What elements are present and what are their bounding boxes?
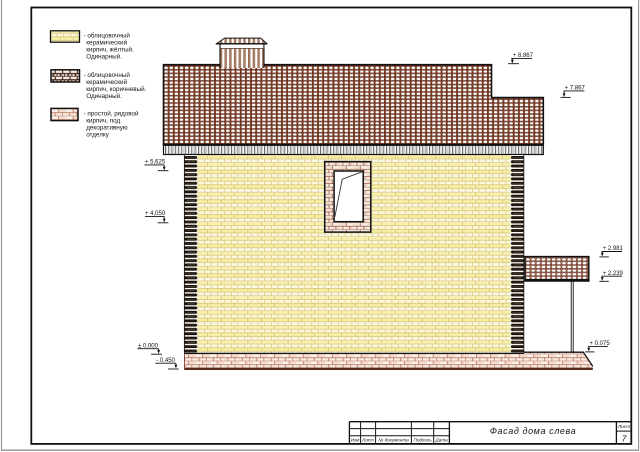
svg-text:керамический: керамический [86, 39, 127, 47]
svg-text:кирпич, коричневый.: кирпич, коричневый. [86, 85, 146, 93]
svg-text:- облицовочный: - облицовочный [84, 32, 131, 40]
svg-text:декоративную: декоративную [86, 125, 128, 132]
svg-text:+ 8.867: + 8.867 [513, 53, 534, 59]
svg-text:керамический: керамический [86, 78, 127, 86]
svg-text:+ 0.075: + 0.075 [590, 341, 611, 347]
svg-text:Одинарный.: Одинарный. [86, 53, 122, 61]
svg-text:Фасад дома слева: Фасад дома слева [490, 426, 576, 436]
svg-text:+ 2.981: + 2.981 [603, 246, 624, 252]
svg-text:+ 4,050: + 4,050 [145, 211, 166, 217]
svg-text:кирпич, жёлтый.: кирпич, жёлтый. [86, 46, 134, 54]
svg-text:№ документа: № документа [378, 438, 409, 443]
svg-text:Одинарный.: Одинарный. [86, 92, 122, 100]
svg-text:Лист: Лист [361, 438, 374, 443]
svg-text:± 0.000: ± 0.000 [138, 343, 159, 349]
svg-text:Дата: Дата [435, 438, 449, 443]
svg-text:Лист: Лист [617, 424, 630, 430]
svg-text:+ 7.867: + 7.867 [565, 85, 586, 91]
svg-text:- 0.450: - 0.450 [156, 358, 175, 364]
svg-text:- облицовочный: - облицовочный [84, 71, 131, 79]
svg-text:Подпись: Подпись [413, 438, 432, 443]
svg-text:кирпич, под: кирпич, под [86, 118, 120, 125]
svg-text:отделку: отделку [86, 132, 110, 139]
svg-text:Изм: Изм [351, 438, 360, 443]
svg-text:+ 2.239: + 2.239 [603, 271, 624, 277]
svg-text:+ 5,625: + 5,625 [145, 159, 166, 165]
svg-text:- простой, рядовой: - простой, рядовой [84, 110, 140, 118]
svg-text:7: 7 [622, 433, 627, 443]
